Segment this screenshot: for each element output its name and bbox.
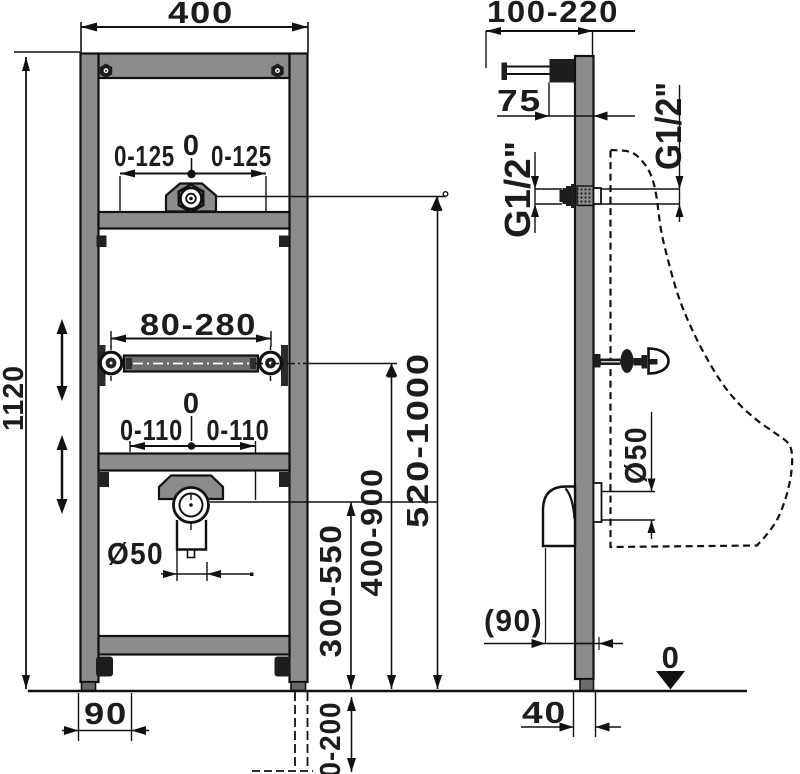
svg-text:(90): (90) [484,603,543,638]
svg-text:0-200: 0-200 [315,702,347,774]
svg-text:G1/2": G1/2" [497,141,538,238]
svg-text:0: 0 [183,388,200,420]
svg-text:400-900: 400-900 [354,468,389,597]
svg-text:80-280: 80-280 [140,307,257,342]
svg-text:0: 0 [662,640,681,675]
svg-text:400: 400 [168,0,234,30]
svg-text:300-550: 300-550 [313,524,348,658]
svg-text:90: 90 [84,696,128,731]
svg-text:0-125: 0-125 [114,141,175,173]
svg-text:100-220: 100-220 [487,0,619,29]
svg-text:Ø50: Ø50 [107,536,164,571]
svg-text:520-1000: 520-1000 [400,352,435,528]
svg-text:G1/2": G1/2" [648,82,689,170]
svg-text:0: 0 [183,130,200,162]
svg-text:Ø50: Ø50 [618,426,653,484]
svg-text:0-110: 0-110 [207,415,270,447]
svg-text:0-125: 0-125 [211,141,272,173]
